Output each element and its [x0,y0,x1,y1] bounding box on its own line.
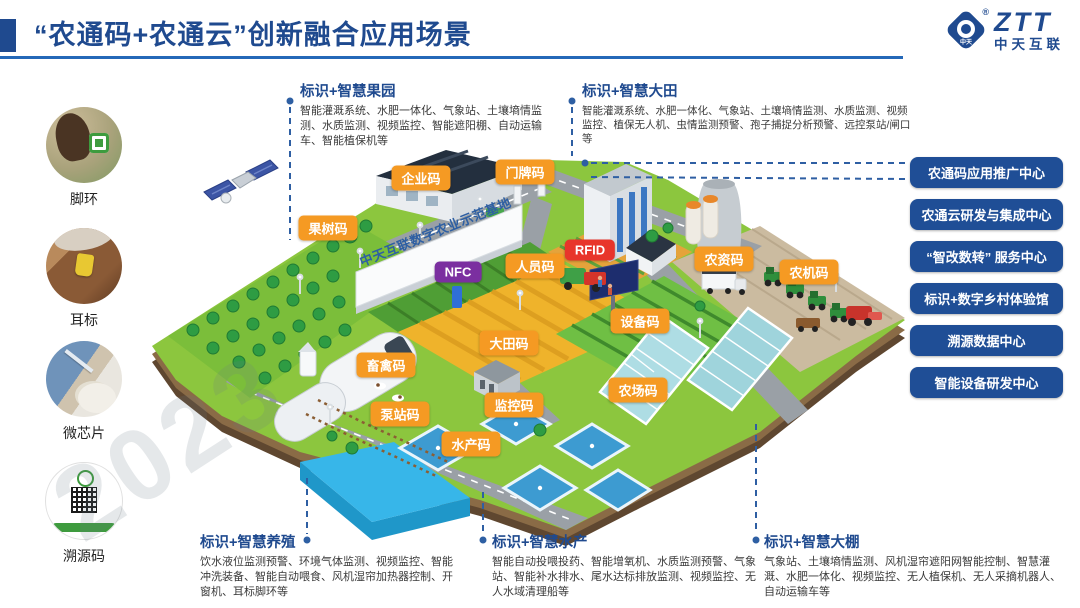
tag-photo [46,228,122,304]
section-title: 标识+智慧大田 [582,80,916,101]
nfc-kiosk [452,286,462,308]
section-smart-breeding: 标识+智慧养殖 饮水液位监测预警、环境气体监测、视频监控、智能冲洗装备、智能自动… [200,531,462,600]
tag-label: 微芯片 [44,423,124,443]
tag-photo [46,107,122,183]
section-title: 标识+智慧水产 [492,531,760,552]
section-smart-greenhouse: 标识+智慧大棚 气象站、土壤墒情监测、风机湿帘遮阳网智能控制、智慧灌溉、水肥一体… [764,531,1066,600]
center-button[interactable]: 农通云研发与集成中心 [910,199,1063,230]
map-code-tag[interactable]: 人员码 [505,254,564,279]
tag-photo [46,341,122,417]
ztt-logo: 中天 ® ZTT 中天互联 [947,9,1064,52]
center-button[interactable]: 溯源数据中心 [910,325,1063,356]
map-code-tag[interactable]: 水产码 [441,432,500,457]
map-code-tag[interactable]: 门牌码 [495,160,554,185]
section-smart-aquaculture: 标识+智慧水产 智能自动投喂投药、智能增氧机、水质监测预警、气象站、智能补水排水… [492,531,760,600]
section-smart-field: 标识+智慧大田 智能灌溉系统、水肥一体化、气象站、土壤墒情监测、水质监测、视频监… [582,80,916,146]
map-code-tag[interactable]: NFC [435,262,482,283]
section-title: 标识+智慧养殖 [200,531,462,552]
map-code-tag[interactable]: 农机码 [779,260,838,285]
slide: “农通码+农通云”创新融合应用场景 中天 ® ZTT 中天互联 [0,0,1080,608]
sidebar-tag-item: 溯源码 [44,462,124,566]
section-smart-orchard: 标识+智慧果园 智能灌溉系统、水肥一体化、气象站、土壤墒情监测、水质监测、视频监… [300,80,558,149]
tag-label: 脚环 [44,189,124,209]
tag-photo [45,462,123,540]
center-button[interactable]: 智能设备研发中心 [910,367,1063,398]
map-code-tag[interactable]: 大田码 [479,331,538,356]
header-divider [0,56,903,59]
map-code-tag[interactable]: 企业码 [391,166,450,191]
map-code-tag[interactable]: RFID [565,240,615,261]
map-code-tag[interactable]: 泵站码 [370,402,429,427]
center-button[interactable]: 标识+数字乡村体验馆 [910,283,1063,314]
tag-label: 耳标 [44,310,124,330]
page-title: “农通码+农通云”创新融合应用场景 [34,13,472,52]
logo-brand-text: ZTT [994,9,1064,36]
title-accent-square [0,19,16,52]
center-button[interactable]: 农通码应用推广中心 [910,157,1063,188]
logo-sub-text: 中天互联 [994,38,1064,52]
satellite-icon [204,160,278,203]
map-code-tag[interactable]: 果树码 [298,216,357,241]
section-title: 标识+智慧大棚 [764,531,1066,552]
section-desc: 气象站、土壤墒情监测、风机湿帘遮阳网智能控制、智慧灌溉、水肥一体化、视频监控、无… [764,555,1066,600]
section-desc: 智能自动投喂投药、智能增氧机、水质监测预警、气象站、智能补水排水、尾水达标排放监… [492,555,760,600]
map-code-tag[interactable]: 监控码 [484,393,543,418]
sidebar-tag-item: 脚环 [44,107,124,209]
tag-label: 溯源码 [44,546,124,566]
sidebar-tag-item: 微芯片 [44,341,124,443]
section-title: 标识+智慧果园 [300,80,558,101]
map-code-tag[interactable]: 农场码 [608,378,667,403]
ztt-logo-icon: 中天 ® [947,11,985,49]
map-code-tag[interactable]: 畜禽码 [356,353,415,378]
map-code-tag[interactable]: 设备码 [610,309,669,334]
map-code-tag[interactable]: 农资码 [694,247,753,272]
section-desc: 饮水液位监测预警、环境气体监测、视频监控、智能冲洗装备、智能自动喂食、风机湿帘加… [200,555,462,600]
center-button[interactable]: “智改数转” 服务中心 [910,241,1063,272]
registered-mark: ® [982,7,989,17]
section-desc: 智能灌溉系统、水肥一体化、气象站、土壤墒情监测、水质监测、视频监控、植保无人机、… [582,104,916,146]
sidebar-tag-item: 耳标 [44,228,124,330]
section-desc: 智能灌溉系统、水肥一体化、气象站、土壤墒情监测、水质监测、视频监控、智能遮阳棚、… [300,104,558,149]
